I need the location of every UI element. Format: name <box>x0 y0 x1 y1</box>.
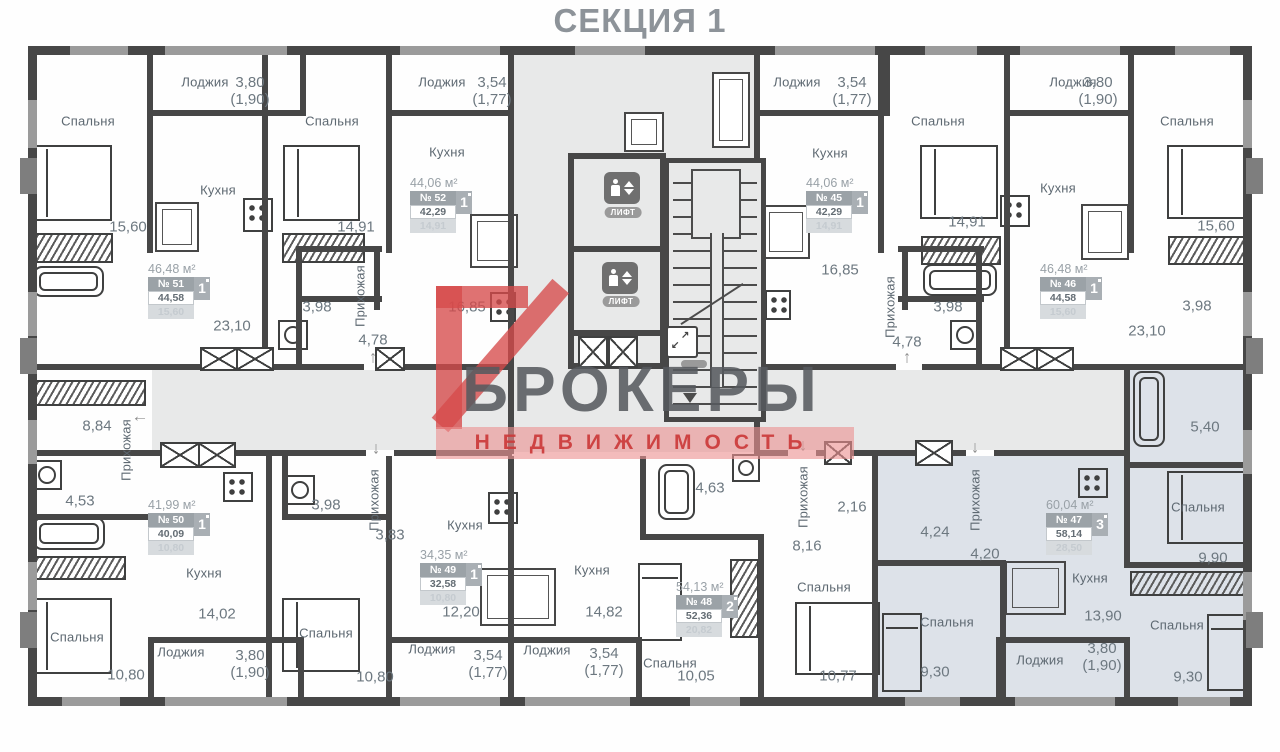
direction-arrow: ↓ <box>971 439 980 456</box>
dimension-label: 14,82 <box>585 605 623 622</box>
stove <box>765 290 791 320</box>
wall <box>758 540 764 702</box>
dimension-label: 3,98 <box>302 300 331 317</box>
apartment-badge: 46,48 м²№ 4644,5815,601 <box>1040 262 1112 319</box>
room-label: Спальня <box>61 114 115 129</box>
dimension-label: 14,02 <box>198 607 236 624</box>
bathtub <box>658 464 695 520</box>
apartment-total-area: 46,48 м² <box>148 262 220 276</box>
room-label: Кухня <box>447 518 483 533</box>
dimension-label: 3,98 <box>933 300 962 317</box>
stove <box>223 472 253 502</box>
window-segment <box>1243 100 1252 148</box>
room-label: Кухня <box>429 145 465 160</box>
wall <box>898 246 984 252</box>
wall <box>386 456 392 702</box>
window-segment <box>62 697 120 706</box>
room-label: Кухня <box>812 146 848 161</box>
table <box>624 112 664 152</box>
dimension-label: 12,20 <box>442 605 480 622</box>
elevator-icon <box>604 172 640 204</box>
dimension-label: 23,10 <box>1128 324 1166 341</box>
window-segment <box>1175 46 1230 55</box>
wardrobe <box>1130 571 1247 596</box>
dimension-label: 3,54 (1,77) <box>584 646 623 680</box>
window-segment <box>28 420 37 464</box>
apartment-number: № 47 <box>1046 513 1092 527</box>
dimension-label: 10,77 <box>819 669 857 686</box>
arrow-up-right-icon: ↗ <box>681 331 689 341</box>
apartment-badge: 44,06 м²№ 5242,2914,911 <box>410 176 482 233</box>
room-label: Спальня <box>299 626 353 641</box>
watermark-logo-top-bar <box>436 286 528 308</box>
apartment-extra-area: 15,60 <box>1040 305 1086 319</box>
apartment-total-area: 44,06 м² <box>806 176 878 190</box>
dimension-label: 8,84 <box>82 419 111 436</box>
shaft-x-box <box>160 442 200 468</box>
wardrobe <box>30 556 126 580</box>
table <box>155 202 199 252</box>
stove <box>243 198 273 232</box>
apartment-badge: 54,13 м²№ 4852,3620,822 <box>676 580 748 637</box>
window-segment <box>575 46 645 55</box>
apartment-extra-area: 14,91 <box>806 219 852 233</box>
person-icon <box>611 179 620 197</box>
apartment-number: № 48 <box>676 595 722 609</box>
room-label: Прихожая <box>367 469 382 531</box>
window-segment <box>400 697 500 706</box>
room-label: Спальня <box>911 114 965 129</box>
apartment-number: № 49 <box>420 563 466 577</box>
apartment-living-area: 40,09 <box>148 527 194 541</box>
bathtub <box>33 517 105 550</box>
apartment-total-area: 41,99 м² <box>148 498 220 512</box>
wall <box>147 55 153 253</box>
room-label: Спальня <box>50 630 104 645</box>
wall <box>386 110 514 116</box>
bed <box>1207 614 1248 691</box>
room-label: Спальня <box>797 580 851 595</box>
wardrobe <box>1168 236 1248 265</box>
apartment-total-area: 44,06 м² <box>410 176 482 190</box>
window-segment <box>775 46 875 55</box>
apartment-badge: 34,35 м²№ 4932,5810,801 <box>420 548 492 605</box>
apartment-living-area: 52,36 <box>676 609 722 623</box>
dimension-label: 14,91 <box>337 220 375 237</box>
dimension-label: 16,85 <box>821 263 859 280</box>
window-segment <box>905 697 960 706</box>
room-label: Спальня <box>920 615 974 630</box>
window-segment <box>28 562 37 610</box>
wall <box>922 364 1252 370</box>
bed <box>882 613 922 692</box>
wall <box>1124 562 1248 568</box>
dimension-label: 3,98 <box>1182 299 1211 316</box>
room-label: Кухня <box>574 563 610 578</box>
shaft-x-box <box>236 347 274 371</box>
wall <box>568 246 666 252</box>
dimension-label: 3,80 (1,90) <box>230 648 269 682</box>
window-segment <box>525 697 630 706</box>
room-label: Лоджия <box>181 75 228 90</box>
shaft-x-box <box>1036 347 1074 371</box>
floorplan-section-1: СЕКЦИЯ 1 СпальняКухняЛоджияСпальняКухняЛ… <box>0 0 1280 752</box>
bathtub <box>923 264 997 296</box>
up-down-arrows-icon <box>622 271 632 285</box>
wall <box>296 246 382 252</box>
direction-arrow: ↑ <box>903 349 912 366</box>
apartment-rooms-count: 2 <box>722 595 738 618</box>
wall-pilaster <box>1246 158 1263 194</box>
wall <box>976 246 982 366</box>
apartment-rooms-count: 1 <box>456 191 472 214</box>
room-label: Прихожая <box>968 469 983 531</box>
direction-arrow: ← <box>132 408 149 425</box>
apartment-total-area: 60,04 м² <box>1046 498 1118 512</box>
apartment-badge: 60,04 м²№ 4758,1428,503 <box>1046 498 1118 555</box>
room-label: Спальня <box>1171 500 1225 515</box>
wall <box>282 456 288 518</box>
wall <box>884 55 890 112</box>
dimension-label: 3,54 (1,77) <box>468 648 507 682</box>
wall-pilaster <box>1246 612 1263 648</box>
apartment-total-area: 34,35 м² <box>420 548 492 562</box>
room-label: Лоджия <box>1016 653 1063 668</box>
room-label: Спальня <box>1160 114 1214 129</box>
wall <box>1128 55 1134 253</box>
dimension-label: 4,53 <box>65 494 94 511</box>
apartment-number: № 46 <box>1040 277 1086 291</box>
dimension-label: 8,16 <box>792 539 821 556</box>
wall <box>386 55 392 253</box>
apartment-living-area: 42,29 <box>806 205 852 219</box>
window-segment <box>1243 430 1252 474</box>
dimension-label: 15,60 <box>109 220 147 237</box>
stove <box>1078 468 1108 498</box>
wall <box>872 456 878 702</box>
room-label: Лоджия <box>523 643 570 658</box>
apartment-living-area: 44,58 <box>1040 291 1086 305</box>
watermark-subtitle-text: НЕДВИЖИМОСТЬ <box>475 431 816 455</box>
watermark-brand-text: БРОКЕРЫ <box>462 352 822 426</box>
dimension-label: 3,54 (1,77) <box>832 75 871 109</box>
apartment-extra-area: 20,82 <box>676 623 722 637</box>
apartment-number: № 45 <box>806 191 852 205</box>
shaft-x-box <box>198 442 236 468</box>
wall <box>298 637 304 703</box>
wall <box>28 514 152 520</box>
wall <box>902 252 908 310</box>
window-segment <box>925 46 977 55</box>
wall <box>568 153 666 159</box>
elevator-icon <box>602 262 638 294</box>
shaft-x-box <box>1000 347 1038 371</box>
dimension-label: 3,80 (1,90) <box>1082 641 1121 675</box>
dimension-label: 13,90 <box>1084 609 1122 626</box>
window-segment <box>690 697 740 706</box>
bed <box>1167 145 1248 219</box>
room-label: Прихожая <box>883 276 898 338</box>
wall <box>296 246 302 366</box>
table <box>762 205 810 259</box>
wall <box>1124 637 1130 703</box>
room-label: Спальня <box>1150 618 1204 633</box>
apartment-extra-area: 15,60 <box>148 305 194 319</box>
window-segment <box>165 697 287 706</box>
direction-arrow: ↓ <box>372 440 381 457</box>
dimension-label: 9,90 <box>1198 551 1227 568</box>
washing-machine <box>278 320 308 350</box>
dimension-label: 3,80 (1,90) <box>230 75 269 109</box>
dimension-label: 9,30 <box>920 665 949 682</box>
dimension-label: 4,20 <box>970 547 999 564</box>
apartment-number: № 52 <box>410 191 456 205</box>
apartment-extra-area: 14,91 <box>410 219 456 233</box>
up-down-arrows-icon <box>624 181 634 195</box>
room-label: Прихожая <box>796 466 811 528</box>
apartment-total-area: 46,48 м² <box>1040 262 1112 276</box>
apartment-rooms-count: 1 <box>466 563 482 586</box>
room-label: Лоджия <box>418 75 465 90</box>
room-label: Кухня <box>200 183 236 198</box>
wall <box>640 534 764 540</box>
dimension-label: 3,98 <box>311 498 340 515</box>
apartment-rooms-count: 3 <box>1092 513 1108 536</box>
dimension-label: 5,40 <box>1190 420 1219 437</box>
wardrobe <box>30 380 146 406</box>
bathtub <box>33 266 104 297</box>
apartment-rooms-count: 1 <box>194 513 210 536</box>
window-segment <box>1020 46 1120 55</box>
window-segment <box>400 46 500 55</box>
dimension-label: 3,83 <box>375 528 404 545</box>
shaft-x-box <box>375 347 405 371</box>
wardrobe <box>30 233 113 263</box>
apartment-extra-area: 28,50 <box>1046 541 1092 555</box>
wall <box>508 456 514 702</box>
wall <box>34 364 364 370</box>
wall-pilaster <box>1246 338 1263 374</box>
wall <box>760 110 890 116</box>
room-label: Кухня <box>1072 571 1108 586</box>
apartment-badge: 46,48 м²№ 5144,5815,601 <box>148 262 220 319</box>
room-label: Лоджия <box>157 645 204 660</box>
room-label: Прихожая <box>353 265 368 327</box>
wall <box>996 637 1002 703</box>
watermark-band: НЕДВИЖИМОСТЬ <box>436 427 854 459</box>
room-label: Кухня <box>1040 181 1076 196</box>
window-segment <box>28 100 37 148</box>
dimension-label: 4,24 <box>920 525 949 542</box>
apartment-badge: 44,06 м²№ 4542,2914,911 <box>806 176 878 233</box>
table <box>712 72 750 148</box>
dimension-label: 2,16 <box>837 500 866 517</box>
table <box>1081 204 1129 260</box>
apartment-rooms-count: 1 <box>194 277 210 300</box>
apartment-number: № 50 <box>148 513 194 527</box>
room-label: Кухня <box>186 566 222 581</box>
arrow-down-left-icon: ↙ <box>671 341 679 351</box>
wall-pilaster <box>20 158 37 194</box>
wall <box>994 450 1130 456</box>
room-label: Лоджия <box>408 642 455 657</box>
dimension-label: 10,80 <box>107 668 145 685</box>
dimension-label: 3,54 (1,77) <box>472 75 511 109</box>
window-segment <box>70 46 128 55</box>
bathtub <box>1133 371 1165 447</box>
wall <box>148 637 304 643</box>
shaft-x-box <box>915 440 953 466</box>
wall <box>640 456 646 540</box>
apartment-living-area: 44,58 <box>148 291 194 305</box>
dimension-label: 23,10 <box>213 319 251 336</box>
dimension-label: 4,63 <box>695 481 724 498</box>
wall <box>568 153 574 369</box>
window-segment <box>28 292 37 336</box>
room-label: Спальня <box>305 114 359 129</box>
page-title: СЕКЦИЯ 1 <box>553 2 726 40</box>
apartment-living-area: 58,14 <box>1046 527 1092 541</box>
wall <box>147 110 306 116</box>
wall <box>1124 370 1130 568</box>
apartment-living-area: 42,29 <box>410 205 456 219</box>
apartment-rooms-count: 1 <box>852 191 868 214</box>
wall <box>1004 110 1134 116</box>
apartment-living-area: 32,58 <box>420 577 466 591</box>
room-label: Лоджия <box>773 75 820 90</box>
dimension-label: 9,30 <box>1173 670 1202 687</box>
elevator-label: ЛИФТ <box>603 296 640 307</box>
table <box>1005 561 1066 615</box>
wall <box>300 55 306 112</box>
wall <box>1004 55 1010 368</box>
wall-pilaster <box>20 612 37 648</box>
apartment-extra-area: 10,80 <box>148 541 194 555</box>
stair-landing <box>691 169 741 239</box>
wall-pilaster <box>20 338 37 374</box>
wall <box>148 637 154 703</box>
apartment-number: № 51 <box>148 277 194 291</box>
room-label: Прихожая <box>119 419 134 481</box>
wall <box>636 637 642 703</box>
bed <box>795 602 880 675</box>
bed <box>920 145 998 219</box>
dimension-label: 15,60 <box>1197 219 1235 236</box>
direction-arrow: ↑ <box>369 349 378 366</box>
bed <box>283 145 360 221</box>
window-segment <box>165 46 287 55</box>
bed <box>32 145 112 221</box>
apartment-rooms-count: 1 <box>1086 277 1102 300</box>
apartment-total-area: 54,13 м² <box>676 580 748 594</box>
apartment-badge: 41,99 м²№ 5040,0910,801 <box>148 498 220 555</box>
wall <box>1124 462 1248 468</box>
apartment-extra-area: 10,80 <box>420 591 466 605</box>
window-segment <box>1178 697 1230 706</box>
dimension-label: 10,80 <box>356 670 394 687</box>
window-segment <box>1243 292 1252 336</box>
person-icon <box>609 269 618 287</box>
dimension-label: 10,05 <box>677 669 715 686</box>
elevator-label: ЛИФТ <box>605 207 642 218</box>
window-segment <box>1015 697 1115 706</box>
shaft-x-box <box>200 347 238 371</box>
dimension-label: 3,80 (1,90) <box>1078 75 1117 109</box>
dimension-label: 14,91 <box>948 215 986 232</box>
